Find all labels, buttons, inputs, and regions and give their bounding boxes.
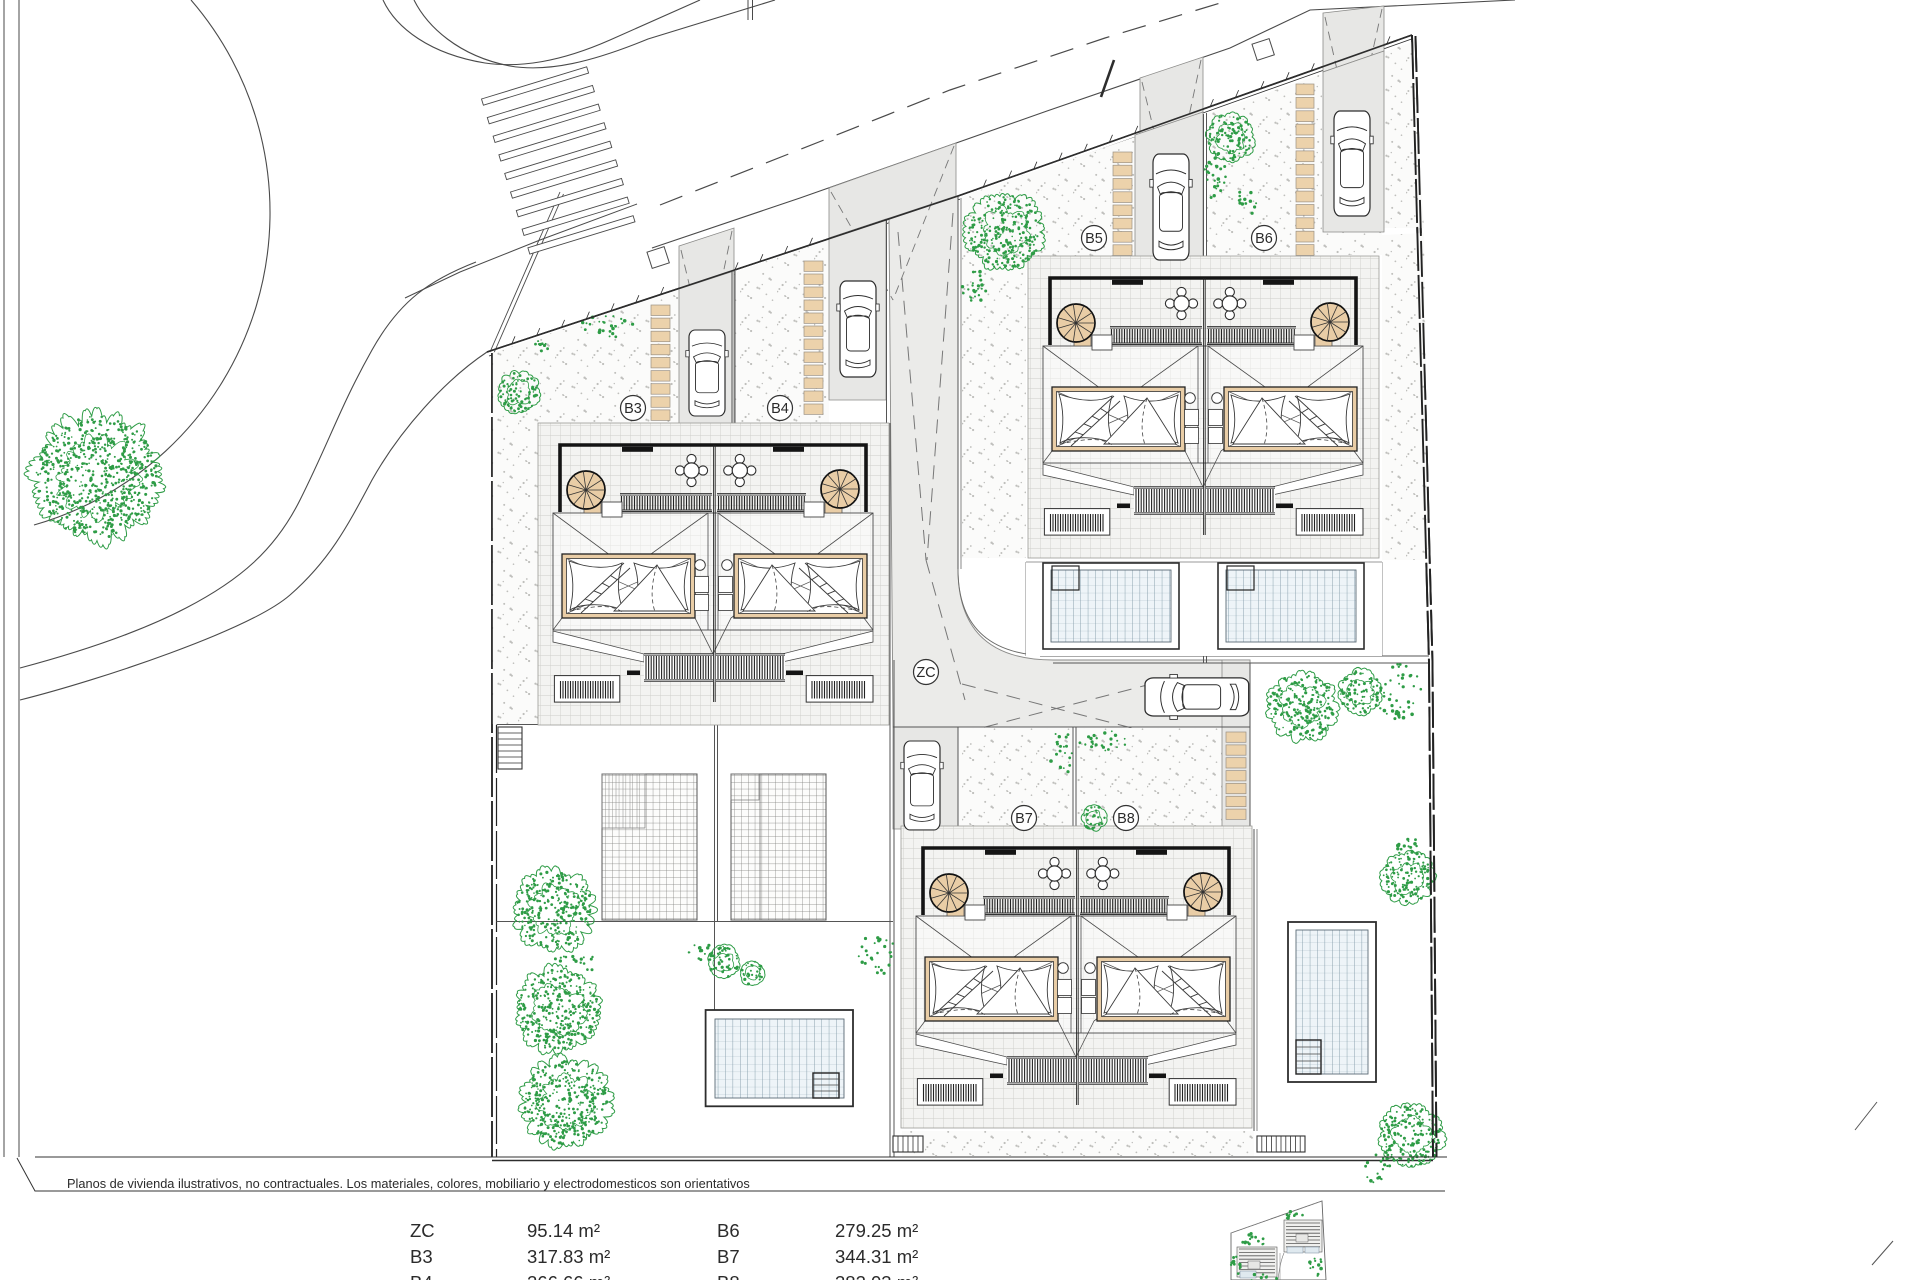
svg-text:B6: B6 [717, 1220, 740, 1241]
svg-text:B4: B4 [410, 1272, 433, 1280]
svg-text:ZC: ZC [916, 665, 935, 681]
svg-text:B6: B6 [1255, 231, 1273, 247]
svg-text:B5: B5 [1085, 231, 1103, 247]
svg-text:95.14 m²: 95.14 m² [527, 1220, 600, 1241]
svg-text:382.03 m²: 382.03 m² [835, 1272, 918, 1280]
svg-text:266.66 m²: 266.66 m² [527, 1272, 610, 1280]
svg-text:279.25 m²: 279.25 m² [835, 1220, 918, 1241]
svg-text:344.31 m²: 344.31 m² [835, 1246, 918, 1267]
svg-text:Planos de vivienda ilustrativo: Planos de vivienda ilustrativos, no cont… [67, 1176, 750, 1191]
svg-text:B8: B8 [1117, 811, 1135, 827]
svg-text:B4: B4 [771, 401, 789, 417]
svg-text:B7: B7 [1015, 811, 1033, 827]
svg-text:B7: B7 [717, 1246, 740, 1267]
svg-text:317.83 m²: 317.83 m² [527, 1246, 610, 1267]
svg-text:B3: B3 [624, 401, 642, 417]
svg-text:ZC: ZC [410, 1220, 435, 1241]
svg-text:B3: B3 [410, 1246, 433, 1267]
svg-text:B8: B8 [717, 1272, 740, 1280]
